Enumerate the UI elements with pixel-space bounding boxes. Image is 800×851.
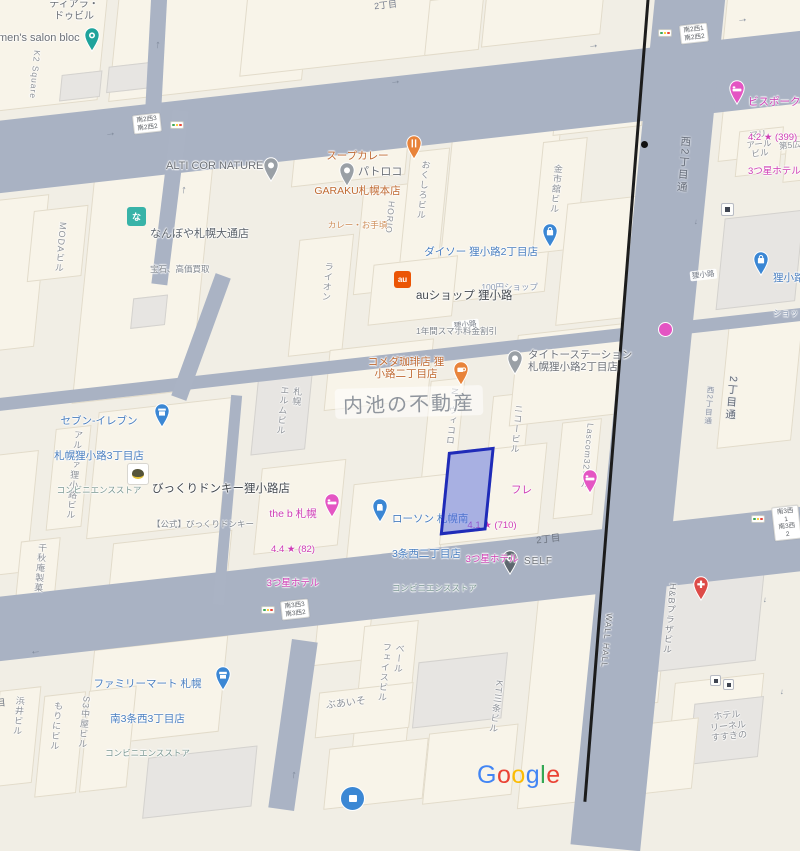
poi-line: 3つ星ホテル <box>452 554 532 566</box>
poi-sub: ショッ <box>773 308 800 318</box>
hotel-pin-icon[interactable] <box>322 492 342 523</box>
poi-label-seven-eleven[interactable]: セブン-イレブン 札幌狸小路3丁目店 コンビニエンスストア <box>40 393 158 507</box>
intersection-sign-s3w3: 南3西3 南3西2 <box>280 598 310 620</box>
transit-stop-icon[interactable] <box>723 679 734 690</box>
poi-label-au-shop[interactable]: auショップ 狸小路 1年間スマホ料金割引 <box>416 268 513 347</box>
road-label-2chome: 2丁目 <box>535 530 561 547</box>
hotel-dot-icon[interactable] <box>658 322 673 337</box>
poi-sub: 1年間スマホ料金割引 <box>416 326 513 336</box>
poi-line: 南3条西3丁目店 <box>80 714 215 726</box>
poi-sub: コンビニエンスストア <box>392 583 477 593</box>
poi-line: 3つ星ホテル <box>260 578 326 590</box>
poi-label-patoroko[interactable]: パトロコ <box>358 167 402 179</box>
traffic-light-icon <box>751 515 765 523</box>
sign-line: 南3西2 <box>777 522 798 539</box>
restaurant-pin-icon[interactable] <box>404 134 424 165</box>
road-arrow: → <box>389 75 401 87</box>
building <box>130 295 168 329</box>
poi-line: 3つ星ホテル <box>748 166 800 178</box>
hotel-pin-icon[interactable] <box>580 468 600 499</box>
poi-line: 札幌狸小路3丁目店 <box>40 451 158 463</box>
nanboya-logo-icon[interactable]: な <box>127 207 146 226</box>
bag-glyph <box>349 795 357 802</box>
poi-sub: 宝石、高価買取 <box>150 264 249 274</box>
road-arrow: → <box>587 39 599 51</box>
bikkuri-donkey-logo-icon[interactable] <box>127 463 149 485</box>
selected-parcel-highlight[interactable] <box>440 447 495 536</box>
poi-label-garaku[interactable]: スープカレー GARAKU札幌本店 カレー・お手頃 <box>300 128 415 242</box>
poi-label-tanukikoji-arcade[interactable]: 狸小路 ショッ <box>773 250 800 329</box>
poi-line: セブン-イレブン <box>40 416 158 428</box>
road-arrow: ↑ <box>155 40 161 51</box>
convenience-store-pin-icon[interactable] <box>370 497 390 528</box>
traffic-light-icon <box>170 121 184 129</box>
road-arrow: ← <box>29 645 41 657</box>
transit-stop-icon[interactable] <box>710 675 721 686</box>
traffic-light-icon <box>658 29 672 37</box>
poi-label-family-mart[interactable]: ファミリーマート 札幌 南3条西3丁目店 コンビニエンスストア <box>80 656 215 770</box>
sign-line: 南2西2 <box>137 122 158 132</box>
transit-stop-icon[interactable] <box>721 203 734 216</box>
intersection-sign-s2w3: 南2西3 南2西2 <box>132 112 162 134</box>
road-arrow: → <box>104 127 116 139</box>
poi-sub: コンビニエンスストア <box>80 748 215 758</box>
building-label-elm: 札幌 エルムビル <box>273 385 304 445</box>
poi-line: スープカレー <box>300 151 415 163</box>
google-logo[interactable]: Google <box>477 761 561 790</box>
map-canvas[interactable]: { "watermark": { "text": "内池の不動産" }, "br… <box>0 0 800 800</box>
poi-line: 狸小路 <box>773 273 800 285</box>
building-label-lienel: ホテル リーネル すすきの <box>702 708 753 744</box>
convenience-store-pin-icon[interactable] <box>152 402 172 433</box>
building <box>59 70 102 101</box>
poi-sub: カレー・お手頃 <box>300 220 415 230</box>
convenience-store-pin-icon[interactable] <box>213 665 233 696</box>
salon-pin-icon[interactable] <box>82 26 102 57</box>
hotel-pin-icon[interactable] <box>727 79 747 110</box>
poi-label-mens-salon-bloc[interactable]: men's salon bloc <box>0 33 80 45</box>
poi-line: 4.2 ★ (399) <box>748 132 800 144</box>
sign-line: 南3西2 <box>285 608 306 618</box>
poi-line: auショップ 狸小路 <box>416 291 513 303</box>
generic-pin-icon[interactable] <box>505 349 525 380</box>
poi-label-taito[interactable]: タイトーステーション 札幌狸小路2丁目店 <box>528 350 632 373</box>
watermark: 内池の不動産 <box>335 385 484 419</box>
logo-mark <box>132 469 144 479</box>
road-arrow: → <box>736 13 748 25</box>
store-pin-icon[interactable] <box>540 222 560 253</box>
poi-line: なんぼや札幌大通店 <box>150 229 249 241</box>
shopping-pin-icon[interactable] <box>751 250 771 281</box>
poi-line: ビスポーク <box>748 97 800 109</box>
medical-pin-icon[interactable] <box>691 575 711 606</box>
poi-label-alti-cor-nature[interactable]: ALTI COR NATURE <box>166 161 263 173</box>
traffic-light-icon <box>261 606 275 614</box>
poi-label-the-b[interactable]: the b 札幌 4.4 ★ (82) 3つ星ホテル <box>260 486 326 601</box>
au-logo-icon[interactable]: au <box>394 271 411 288</box>
intersection-sign-s2w1: 南2西1 南2西2 <box>679 22 709 44</box>
poi-label-komeda[interactable]: コメダ珈琲店 狸 小路二丁目店 <box>360 357 452 380</box>
intersection-sign-s3w1: 南3西1 南3西2 <box>771 505 800 542</box>
sign-line: 南2西2 <box>684 32 705 42</box>
poi-line: 4.4 ★ (82) <box>260 544 326 556</box>
poi-label-tiara[interactable]: ティアラ・ ドゥビル <box>44 0 104 22</box>
poi-line: the b 札幌 <box>260 509 326 521</box>
generic-pin-icon[interactable] <box>261 156 281 187</box>
store-dot-icon[interactable] <box>340 786 365 811</box>
poi-line: ファミリーマート 札幌 <box>80 679 215 691</box>
generic-pin-icon[interactable] <box>337 161 357 192</box>
poi-label-nanboya[interactable]: なんぼや札幌大通店 宝石、高価買取 <box>150 206 249 285</box>
poi-line: GARAKU札幌本店 <box>300 186 415 198</box>
road-arrow: ↑ <box>180 185 187 197</box>
tram-station-dot <box>641 141 648 148</box>
poi-label-bespoke[interactable]: ビスポーク 4.2 ★ (399) 3つ星ホテル <box>748 74 800 189</box>
poi-line: ダイソー 狸小路2丁目店 <box>420 247 538 259</box>
poi-sub: コンビニエンスストア <box>40 485 158 495</box>
